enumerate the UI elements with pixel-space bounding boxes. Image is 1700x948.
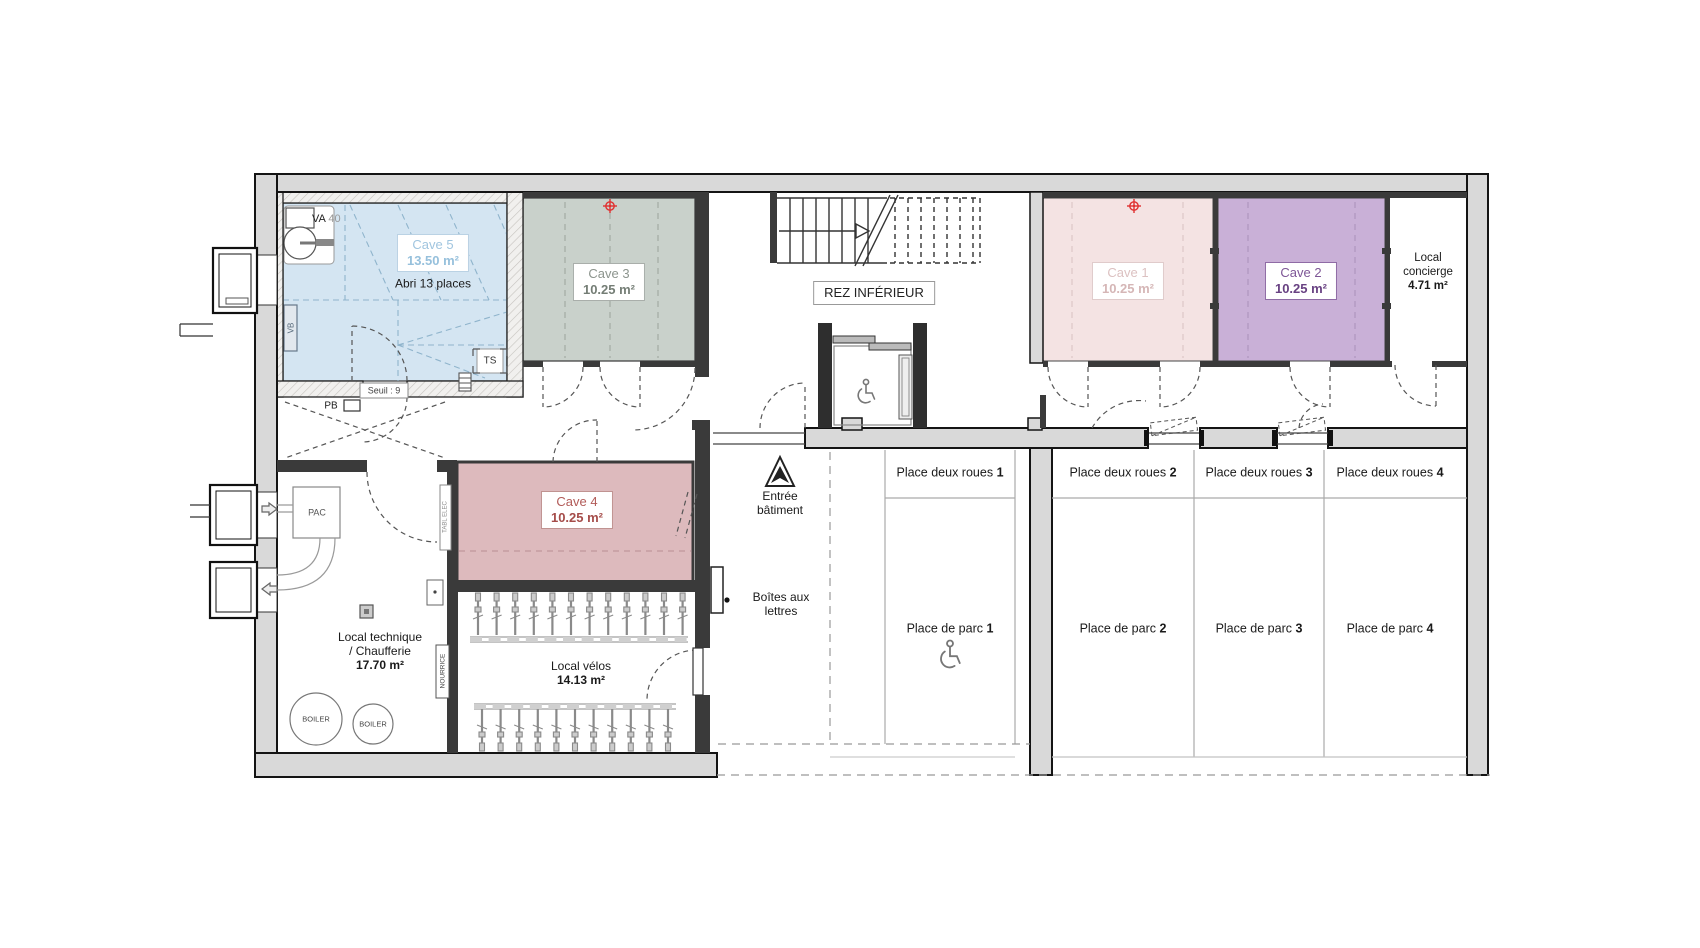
car-spot-4-label: Place de parc 4: [1347, 622, 1434, 637]
wall-parking-north-2: [1200, 428, 1277, 448]
bike-spot-3-label: Place deux roues 3: [1205, 466, 1312, 481]
cave-5-label: Cave 5 13.50 m²: [397, 234, 469, 272]
vb-label: VB: [284, 323, 299, 334]
pac-label: PAC: [308, 506, 326, 521]
bike-spot-1-label: Place deux roues 1: [896, 466, 1003, 481]
mailbox-marker-dot: [724, 597, 729, 602]
concierge-label: Local concierge 4.71 m²: [1403, 251, 1453, 293]
cave-5-note: Abri 13 places: [395, 277, 471, 292]
wall-east: [1467, 174, 1488, 775]
nourrice-label: NOURRICE: [439, 654, 448, 689]
boiler-1-label: BOILER: [302, 712, 330, 727]
mailboxes-label: Boîtes auxlettres: [753, 590, 810, 618]
stair-direction-arrow: [856, 224, 869, 238]
floor-label: REZ INFÉRIEUR: [813, 281, 935, 305]
staircase: [777, 195, 980, 266]
ts-label: TS: [484, 354, 497, 369]
car-spot-1-label: Place de parc 1: [907, 622, 994, 637]
floor-plan: VA 40 Cave 5 13.50 m² Abri 13 places Cav…: [0, 0, 1700, 948]
wall-south-left: [255, 753, 717, 777]
technical-room-symbols: [262, 485, 451, 745]
cave-2-label: Cave 2 10.25 m²: [1265, 262, 1337, 300]
duct-stub-icon: [316, 239, 334, 246]
floor-plan-drawing: [0, 0, 1700, 948]
handicap-parking-icon: [941, 641, 960, 668]
wall-north: [255, 174, 1488, 192]
wall-parking-north-1: [805, 428, 1148, 448]
elevator: [818, 323, 927, 428]
cave-4-label: Cave 4 10.25 m²: [541, 491, 613, 529]
velos-door-leaf: [693, 648, 703, 695]
car-spot-3-label: Place de parc 3: [1216, 622, 1303, 637]
parking-lines: [717, 450, 1490, 775]
entrance-label: Entréebâtiment: [757, 489, 803, 517]
pb-box: [344, 400, 360, 411]
ventilation-unit-icon: [286, 208, 314, 228]
elevator-wheelchair-icon: [858, 379, 874, 402]
car-spot-2-label: Place de parc 2: [1080, 622, 1167, 637]
pb-label: PB: [324, 399, 337, 414]
wall-parking-divider: [1030, 428, 1052, 775]
va-label: VA 40: [312, 212, 341, 227]
bike-spot-2-label: Place deux roues 2: [1069, 466, 1176, 481]
boiler-2-label: BOILER: [359, 717, 387, 732]
bike-spot-4-label: Place deux roues 4: [1336, 466, 1443, 481]
wall-cave1-west: [1030, 192, 1043, 363]
technique-label: Local technique / Chaufferie 17.70 m²: [338, 630, 422, 672]
velos-label: Local vélos 14.13 m²: [551, 659, 611, 687]
wall-parking-north-3: [1328, 428, 1467, 448]
elevator-door: [833, 336, 875, 343]
cave-1-label: Cave 1 10.25 m²: [1092, 262, 1164, 300]
mailbox-unit: [711, 567, 723, 613]
light-wells: [180, 248, 257, 618]
tabl-elec-label: TABL ELEC: [442, 501, 451, 533]
seuil-label: Seuil : 9: [368, 384, 401, 399]
cave-3-label: Cave 3 10.25 m²: [573, 263, 645, 301]
